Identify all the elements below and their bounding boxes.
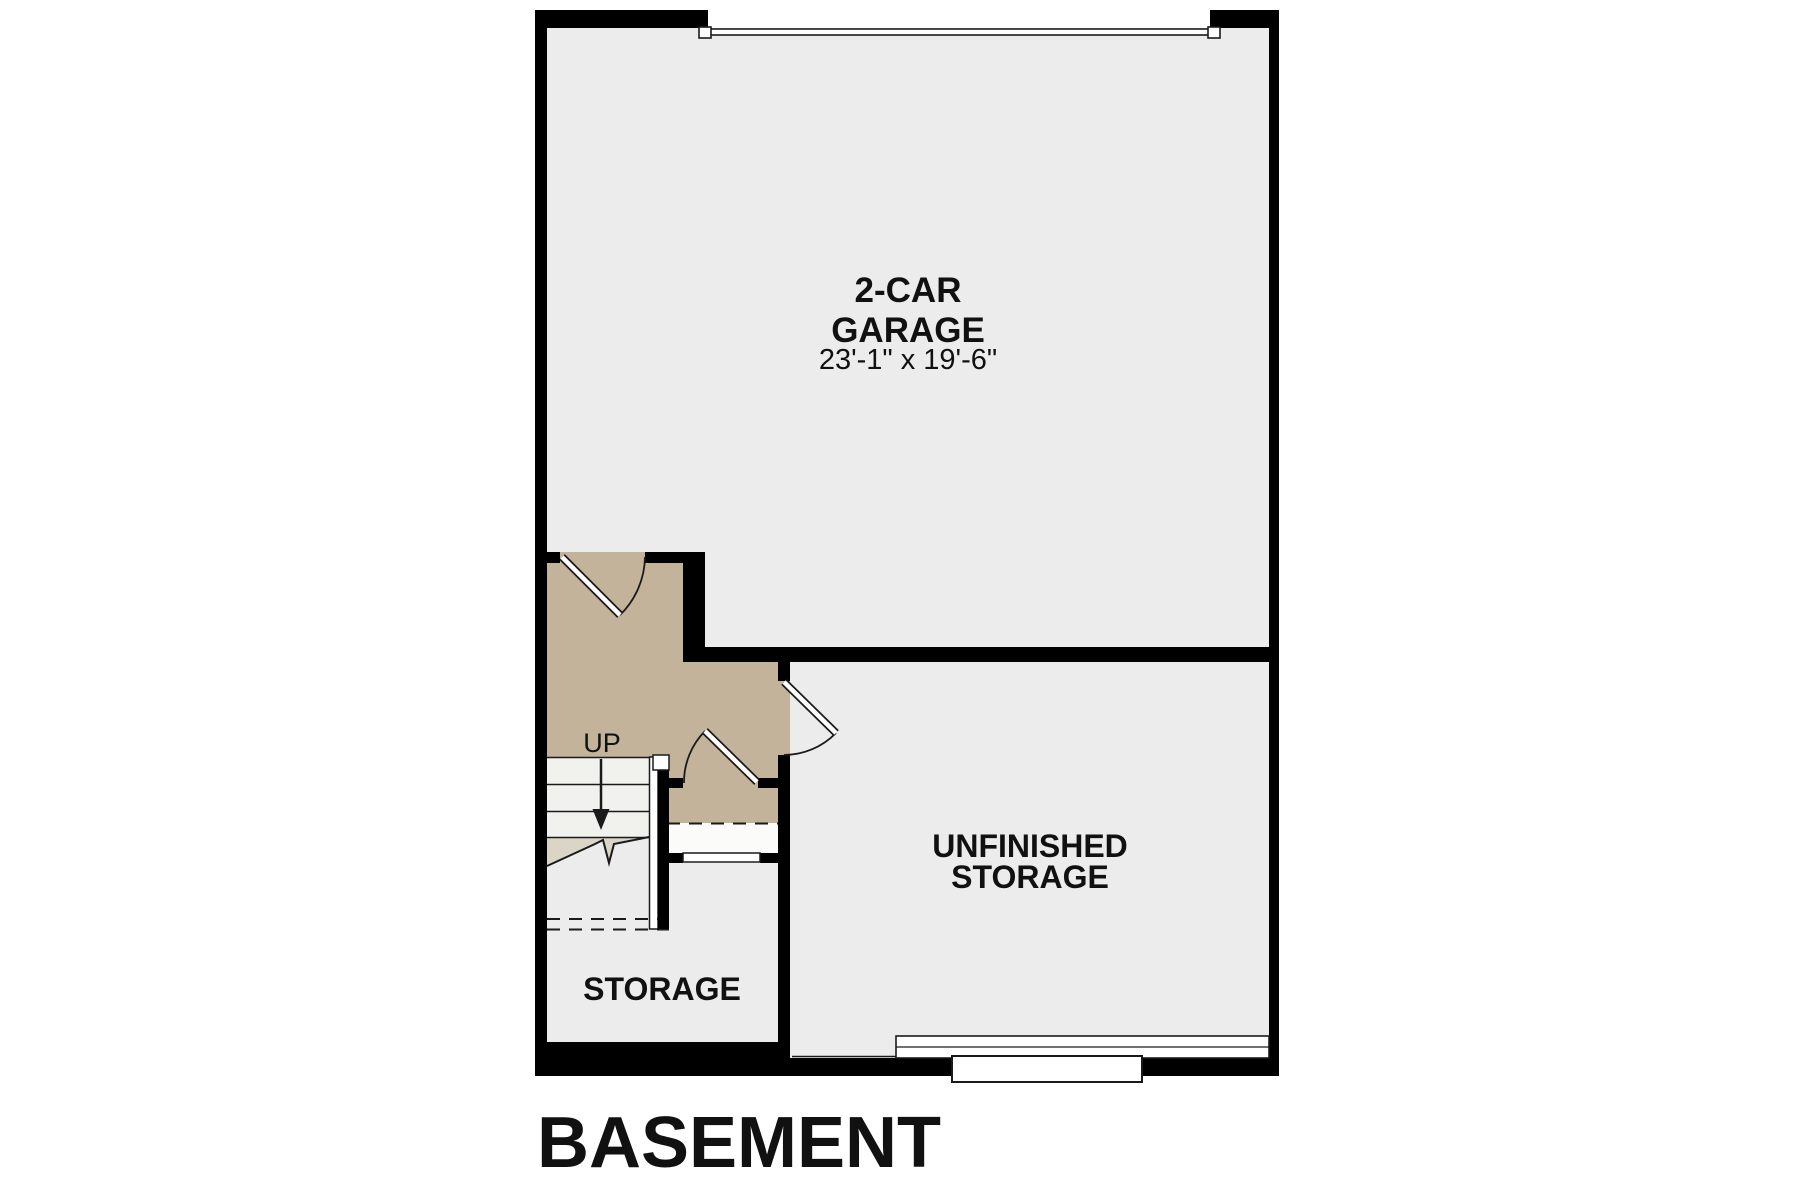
- wall-storage-top-stub-left: [667, 853, 683, 863]
- stair-newel-post: [653, 755, 669, 770]
- stair-treads: [547, 757, 649, 838]
- wall-stair-side: [658, 769, 669, 929]
- wall-entry-vertical: [683, 552, 705, 662]
- floor-plan-page: 2-CAR GARAGE 23'-1" x 19'-6" UNFINISHED …: [0, 0, 1800, 1200]
- wall-doorC-right-jamb: [758, 778, 778, 788]
- unfinished-storage-label-line2: STORAGE: [951, 859, 1109, 895]
- wall-right: [1269, 10, 1279, 1076]
- wall-divider-stub-top: [778, 662, 790, 681]
- window-well: [952, 1056, 1142, 1082]
- wall-divider-lower: [778, 755, 790, 1058]
- stair-up-label: UP: [583, 728, 621, 758]
- garage-door-jamb-left: [699, 27, 711, 38]
- wall-entry-top-stub: [547, 552, 560, 563]
- wall-top-left: [535, 10, 708, 28]
- floor-plan-drawing: 2-CAR GARAGE 23'-1" x 19'-6" UNFINISHED …: [0, 0, 1800, 1200]
- storage-label: STORAGE: [583, 971, 741, 1007]
- garage-label-line1: 2-CAR: [855, 271, 962, 310]
- wall-doorC-left-jamb: [667, 778, 683, 788]
- wall-storage-top-stub-right: [760, 853, 778, 863]
- wall-bottom-storage: [535, 1042, 790, 1076]
- garage-door-jamb-right: [1208, 27, 1220, 38]
- plan-title: BASEMENT: [537, 1103, 941, 1183]
- wall-top-right: [1210, 10, 1279, 28]
- wall-left: [535, 10, 547, 1076]
- garage-dimensions: 23'-1" x 19'-6": [819, 344, 997, 376]
- stair-rail: [650, 757, 659, 929]
- storage-cased-opening: [683, 853, 760, 862]
- stair-landing: [667, 823, 778, 853]
- garage-door-panel: [710, 29, 1209, 35]
- wall-garage-bottom: [683, 647, 1269, 662]
